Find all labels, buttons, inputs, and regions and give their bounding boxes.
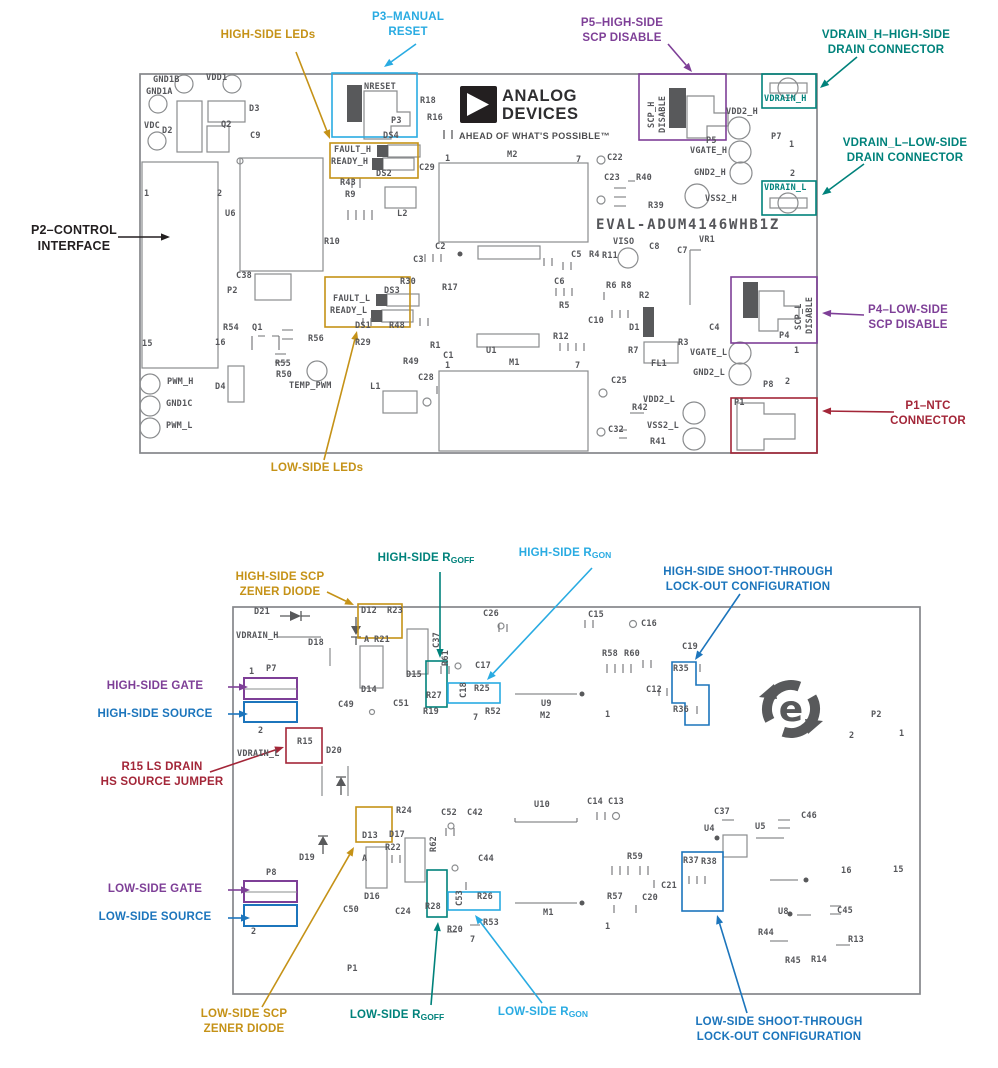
callout-p4-low-side-scp-disable: P4–LOW-SIDESCP DISABLE [868, 303, 948, 332]
bottom-board-refdes-p8: P8 [266, 869, 277, 878]
bottom-board-refdes-c49: C49 [338, 701, 354, 710]
bottom-board-refdes-2: 2 [258, 727, 263, 736]
callout-r15-ls-drain-hs-source-jumper: R15 LS DRAINHS SOURCE JUMPER [101, 760, 224, 789]
bottom-board-refdes-c18: C18 [460, 682, 469, 698]
top-board-refdes-nreset: NRESET [364, 83, 396, 92]
callout-low-side-leds: LOW-SIDE LEDs [271, 461, 363, 476]
top-board-refdes-viso: VISO [613, 238, 634, 247]
bottom-board-refdes-r37: R37 [683, 857, 699, 866]
top-board-refdes-r8: R8 [621, 282, 632, 291]
top-board-refdes-1: 1 [789, 141, 794, 150]
leader-low-side-shoot-through [716, 915, 723, 925]
bottom-board-outline [233, 607, 920, 994]
bottom-board-refdes-c15: C15 [588, 611, 604, 620]
top-board-refdes-m2: M2 [507, 151, 518, 160]
bottom-board-refdes-r59: R59 [627, 853, 643, 862]
callout-high-side-rgon: HIGH-SIDE RGON [519, 546, 612, 561]
callout-high-side-scp-zener-diode: HIGH-SIDE SCPZENER DIODE [236, 570, 325, 599]
bottom-board-refdes-r57: R57 [607, 893, 623, 902]
top-board-refdes-c5: C5 [571, 251, 582, 260]
efup-recycle-icon: e [758, 676, 824, 742]
top-board-refdes-7: 7 [575, 362, 580, 371]
leader-low-side-shoot-through [720, 924, 747, 1013]
leader-p1-ntc-connector [831, 411, 894, 412]
bottom-board-refdes-a: A [364, 636, 369, 645]
top-board-refdes-r10: R10 [324, 238, 340, 247]
bottom-board-refdes-r36: R36 [673, 706, 689, 715]
leader-vdrain-l-drain-connector [829, 164, 864, 190]
top-board-refdes-fl1: FL1 [651, 360, 667, 369]
top-board-refdes-r56: R56 [308, 335, 324, 344]
leader-vdrain-l-drain-connector [822, 187, 831, 195]
top-board-refdes-fault_h: FAULT_H [334, 146, 371, 155]
p8-source-pin-box [244, 905, 297, 926]
efup-e-glyph: e [779, 689, 803, 730]
logo-tagline: AHEAD OF WHAT'S POSSIBLE™ [459, 131, 610, 141]
top-board-refdes-r16: R16 [427, 114, 443, 123]
bottom-board-refdes-c14: C14 [587, 798, 603, 807]
top-board-refdes-c3: C3 [413, 256, 424, 265]
top-board-refdes-r17: R17 [442, 284, 458, 293]
bottom-board-refdes-r14: R14 [811, 956, 827, 965]
top-board-refdes-l2: L2 [397, 210, 408, 219]
top-board-refdes-2: 2 [217, 190, 222, 199]
top-board-refdes-r55: R55 [275, 360, 291, 369]
bottom-board-refdes-c13: C13 [608, 798, 624, 807]
top-board-refdes-r9: R9 [345, 191, 356, 200]
top-board-refdes-r30: R30 [400, 278, 416, 287]
bottom-board-refdes-vdrain_l: VDRAIN_L [237, 750, 280, 759]
top-board-refdes-r54: R54 [223, 324, 239, 333]
bottom-board-refdes-7: 7 [473, 714, 478, 723]
p7-source-pin-box [244, 702, 297, 722]
bottom-board-refdes-c20: C20 [642, 894, 658, 903]
leader-low-side-source [241, 914, 250, 921]
top-board-refdes-temp_pwm: TEMP_PWM [289, 382, 332, 391]
leader-low-side-rgoff [434, 922, 441, 931]
top-board-refdes-c32: C32 [608, 426, 624, 435]
bottom-board-refdes-1: 1 [899, 730, 904, 739]
bottom-board-refdes-c42: C42 [467, 809, 483, 818]
callout-vdrain-h-drain-connector: VDRAIN_H–HIGH-SIDEDRAIN CONNECTOR [822, 28, 950, 57]
bottom-board-refdes-d21: D21 [254, 608, 270, 617]
top-board-refdes-16: 16 [215, 339, 226, 348]
leader-high-side-scp-zener-diode [327, 592, 346, 601]
top-board-refdes-r4: R4 [589, 251, 600, 260]
top-board-refdes-p1: P1 [734, 399, 745, 408]
top-board-refdes-vgate_h: VGATE_H [690, 147, 727, 156]
top-board-refdes-vdd1: VDD1 [206, 74, 227, 83]
top-board-refdes-r39: R39 [648, 202, 664, 211]
bottom-board-refdes-c21: C21 [661, 882, 677, 891]
top-board-refdes-ds1: DS1 [355, 322, 371, 331]
bottom-board-components [277, 621, 850, 946]
top-board-refdes-gnd1b: GND1B [153, 76, 180, 85]
top-board-refdes-ds3: DS3 [384, 287, 400, 296]
bottom-board-refdes-r15: R15 [297, 738, 313, 747]
bottom-board-refdes-u4: U4 [704, 825, 715, 834]
leader-vdrain-h-drain-connector [827, 57, 857, 82]
bottom-board-refdes-c26: C26 [483, 610, 499, 619]
top-board-refdes-c22: C22 [607, 154, 623, 163]
bottom-board-refdes-r22: R22 [385, 844, 401, 853]
leader-p3-manual-reset [384, 59, 393, 67]
top-board-refdes-d1: D1 [629, 324, 640, 333]
top-board-refdes-1: 1 [445, 362, 450, 371]
bottom-board-refdes-r60: R60 [624, 650, 640, 659]
bottom-board-refdes-c19: C19 [682, 643, 698, 652]
top-board-refdes-p8: P8 [763, 381, 774, 390]
bottom-board-refdes-c51: C51 [393, 700, 409, 709]
top-board-refdes-vdc: VDC [144, 122, 160, 131]
leader-low-side-rgon [480, 922, 542, 1003]
callout-low-side-gate: LOW-SIDE GATE [108, 882, 202, 897]
bottom-board-refdes-d12: D12 [361, 607, 377, 616]
bottom-board-refdes-c50: C50 [343, 906, 359, 915]
bottom-board-refdes-r21: R21 [374, 636, 390, 645]
leader-p5-high-side-scp-disable [668, 44, 686, 65]
callout-high-side-source: HIGH-SIDE SOURCE [97, 707, 212, 722]
callout-vdrain-l-drain-connector: VDRAIN_L–LOW-SIDEDRAIN CONNECTOR [843, 136, 968, 165]
callout-low-side-rgon: LOW-SIDE RGON [498, 1005, 588, 1020]
bottom-board-refdes-u8: U8 [778, 908, 789, 917]
bottom-board-refdes-p1: P1 [347, 965, 358, 974]
bottom-board-refdes-r61: R61 [442, 650, 451, 666]
bottom-board-refdes-r62: R62 [430, 836, 439, 852]
top-board-refdes-2: 2 [785, 378, 790, 387]
bottom-board-refdes-r35: R35 [673, 665, 689, 674]
bottom-board-refdes-c16: C16 [641, 620, 657, 629]
top-board-refdes-gnd2_l: GND2_L [693, 369, 725, 378]
top-board-refdes-c29: C29 [419, 164, 435, 173]
leader-p2-control-interface [161, 233, 170, 240]
callout-p5-high-side-scp-disable: P5–HIGH-SIDESCP DISABLE [581, 16, 663, 45]
top-board-refdes-7: 7 [576, 156, 581, 165]
top-board-refdes-ready_l: READY_L [330, 307, 367, 316]
top-board-refdes-r43: R43 [340, 179, 356, 188]
top-board-refdes-r29: R29 [355, 339, 371, 348]
m2-body [439, 163, 588, 242]
bottom-board-refdes-r44: R44 [758, 929, 774, 938]
top-board-refdes-c28: C28 [418, 374, 434, 383]
top-board-refdes-c23: C23 [604, 174, 620, 183]
top-board-refdes-d2: D2 [162, 127, 173, 136]
top-board-refdes-vss2_h: VSS2_H [705, 195, 737, 204]
bottom-board-refdes-r24: R24 [396, 807, 412, 816]
leader-high-side-leds [323, 129, 330, 139]
top-board-refdes-vgate_l: VGATE_L [690, 349, 727, 358]
callout-high-side-leds: HIGH-SIDE LEDs [221, 28, 316, 43]
top-board-refdes-r1: R1 [430, 342, 441, 351]
top-board-refdes-r5: R5 [559, 302, 570, 311]
bottom-board-refdes-c37: C37 [714, 808, 730, 817]
top-board-refdes-1: 1 [144, 190, 149, 199]
bottom-board-refdes-7: 7 [470, 936, 475, 945]
top-board-refdes-r18: R18 [420, 97, 436, 106]
top-board-refdes-r41: R41 [650, 438, 666, 447]
leader-high-side-rgon [493, 568, 592, 673]
bottom-board-refdes-d14: D14 [361, 686, 377, 695]
callout-low-side-scp-zener-diode: LOW-SIDE SCPZENER DIODE [201, 1007, 288, 1036]
top-board-refdes-c4: C4 [709, 324, 720, 333]
bottom-board-refdes-r53: R53 [483, 919, 499, 928]
bottom-board-refdes-d18: D18 [308, 639, 324, 648]
top-board-refdes-r50: R50 [276, 371, 292, 380]
bottom-board-refdes-r20: R20 [447, 926, 463, 935]
top-board-refdes-c10: C10 [588, 317, 604, 326]
top-board-refdes-ds2: DS2 [376, 170, 392, 179]
top-board-refdes-r12: R12 [553, 333, 569, 342]
bottom-board-refdes-a: A [362, 855, 367, 864]
top-board-refdes-vss2_l: VSS2_L [647, 422, 679, 431]
top-board-refdes-15: 15 [142, 340, 153, 349]
bottom-board-refdes-r26: R26 [477, 893, 493, 902]
bottom-board-refdes-c17: C17 [475, 662, 491, 671]
leader-high-side-leds [296, 52, 327, 131]
board-silkscreen-title: EVAL-ADUM4146WHB1Z [596, 217, 780, 233]
callout-p1-ntc-connector: P1–NTCCONNECTOR [890, 399, 966, 428]
top-board-refdes-c8: C8 [649, 243, 660, 252]
callout-low-side-shoot-through: LOW-SIDE SHOOT-THROUGHLOCK-OUT CONFIGURA… [695, 1015, 862, 1044]
bottom-board-refdes-r45: R45 [785, 957, 801, 966]
bottom-board-refdes-u10: U10 [534, 801, 550, 810]
bottom-board-refdes-r52: R52 [485, 708, 501, 717]
bottom-board-refdes-m2: M2 [540, 712, 551, 721]
top-board-refdes-fault_l: FAULT_L [333, 295, 370, 304]
top-board-refdes-p3: P3 [391, 117, 402, 126]
leader-p4-low-side-scp-disable [822, 310, 831, 317]
top-board-refdes-r6: R6 [606, 282, 617, 291]
analog-devices-logo: ANALOG DEVICES AHEAD OF WHAT'S POSSIBLE™ [444, 86, 610, 141]
top-board-refdes-q2: Q2 [221, 121, 232, 130]
m1-body [439, 371, 588, 451]
top-board-refdes-vdrain_h: VDRAIN_H [764, 95, 807, 104]
p1-connector-outline [737, 403, 795, 450]
top-board-refdes-ds4: DS4 [383, 132, 399, 141]
bottom-board-refdes-1: 1 [249, 668, 254, 677]
top-board-refdes-c9: C9 [250, 132, 261, 141]
top-board-refdes-vdrain_l: VDRAIN_L [764, 184, 807, 193]
bottom-board-refdes-r58: R58 [602, 650, 618, 659]
p5-jumper-outline [687, 96, 728, 138]
bottom-board-refdes-d20: D20 [326, 747, 342, 756]
bottom-board-refdes-r19: R19 [423, 708, 439, 717]
bottom-board-refdes-u9: U9 [541, 700, 552, 709]
top-board-refdes-r3: R3 [678, 339, 689, 348]
top-board-refdes-gnd1c: GND1C [166, 400, 193, 409]
top-board-refdes-2: 2 [790, 170, 795, 179]
bottom-board-refdes-c45: C45 [837, 907, 853, 916]
top-board-refdes-gnd2_h: GND2_H [694, 169, 726, 178]
top-board-refdes-p5: P5 [706, 137, 717, 146]
bottom-board-refdes-r23: R23 [387, 607, 403, 616]
callout-p3-manual-reset: P3–MANUALRESET [372, 10, 444, 39]
leader-low-side-leds [324, 340, 355, 460]
top-board-refdes-l1: L1 [370, 383, 381, 392]
top-board-refdes-p2: P2 [227, 287, 238, 296]
bottom-board-refdes-r13: R13 [848, 936, 864, 945]
bottom-board-refdes-2: 2 [251, 928, 256, 937]
bottom-board-refdes-d19: D19 [299, 854, 315, 863]
top-board-refdes-r7: R7 [628, 347, 639, 356]
top-board-refdes-d4: D4 [215, 383, 226, 392]
top-board-refdes-u1: U1 [486, 347, 497, 356]
u6-body [240, 158, 323, 271]
top-board-refdes-r42: R42 [632, 404, 648, 413]
bottom-board-refdes-c53: C53 [456, 890, 465, 906]
bottom-board-refdes-c37: C37 [433, 632, 442, 648]
leader-high-side-shoot-through [700, 594, 740, 653]
top-board-refdes-gnd1a: GND1A [146, 88, 173, 97]
bottom-board-refdes-d17: D17 [389, 831, 405, 840]
top-board-refdes-pwm_h: PWM_H [167, 378, 194, 387]
top-board-refdes-disable: DISABLE [806, 297, 815, 334]
top-board-refdes-p4: P4 [779, 332, 790, 341]
bottom-board-refdes-r38: R38 [701, 858, 717, 867]
top-board-refdes-1: 1 [445, 155, 450, 164]
callout-high-side-shoot-through: HIGH-SIDE SHOOT-THROUGHLOCK-OUT CONFIGUR… [663, 565, 832, 594]
top-board-refdes-pwm_l: PWM_L [166, 422, 193, 431]
p2-connector-body [142, 162, 218, 368]
top-board-refdes-p7: P7 [771, 133, 782, 142]
bottom-board-refdes-vdrain_h: VDRAIN_H [236, 632, 279, 641]
bottom-board-refdes-c46: C46 [801, 812, 817, 821]
top-board-refdes-r11: R11 [602, 252, 618, 261]
bottom-board-refdes-c44: C44 [478, 855, 494, 864]
eval-board-figure: ANALOG DEVICES AHEAD OF WHAT'S POSSIBLE™… [0, 0, 998, 1068]
callout-low-side-rgoff: LOW-SIDE RGOFF [350, 1008, 444, 1023]
top-board-refdes-r40: R40 [636, 174, 652, 183]
callout-high-side-gate: HIGH-SIDE GATE [107, 679, 204, 694]
top-board-refdes-c2: C2 [435, 243, 446, 252]
callout-p2-control-interface: P2–CONTROLINTERFACE [31, 222, 117, 254]
p4-jumper-outline [759, 291, 799, 331]
top-board-refdes-q1: Q1 [252, 324, 263, 333]
top-board-refdes-scp_h: SCP_H [648, 101, 657, 128]
top-board-refdes-c38: C38 [236, 272, 252, 281]
bottom-board-refdes-c52: C52 [441, 809, 457, 818]
bottom-board-refdes-2: 2 [849, 732, 854, 741]
bottom-board-refdes-r27: R27 [426, 692, 442, 701]
top-board-refdes-vr1: VR1 [699, 236, 715, 245]
logo-line1: ANALOG [502, 87, 577, 105]
leader-p4-low-side-scp-disable [831, 313, 864, 315]
top-board-refdes-ready_h: READY_H [331, 158, 368, 167]
bottom-board-refdes-1: 1 [605, 923, 610, 932]
leader-p1-ntc-connector [822, 408, 831, 415]
callout-high-side-rgoff: HIGH-SIDE RGOFF [378, 551, 475, 566]
bottom-board-refdes-r25: R25 [474, 685, 490, 694]
top-board-refdes-r48: R48 [389, 322, 405, 331]
leader-low-side-gate [241, 886, 250, 893]
bottom-board-refdes-r28: R28 [425, 903, 441, 912]
top-board-refdes-disable: DISABLE [659, 96, 668, 133]
top-board-refdes-c6: C6 [554, 278, 565, 287]
leader-p3-manual-reset [391, 44, 416, 62]
top-board-refdes-vdd2_h: VDD2_H [726, 108, 758, 117]
bottom-board-refdes-p7: P7 [266, 665, 277, 674]
bottom-board-refdes-15: 15 [893, 866, 904, 875]
bottom-board-refdes-p2: P2 [871, 711, 882, 720]
top-board-refdes-scp_l: SCP_L [795, 303, 804, 330]
top-board-refdes-c25: C25 [611, 377, 627, 386]
top-board-refdes-r49: R49 [403, 358, 419, 367]
top-board-refdes-c1: C1 [443, 352, 454, 361]
bottom-board-refdes-c12: C12 [646, 686, 662, 695]
top-board-refdes-m1: M1 [509, 359, 520, 368]
bottom-board-refdes-d16: D16 [364, 893, 380, 902]
bottom-board-refdes-c24: C24 [395, 908, 411, 917]
top-board-refdes-u6: U6 [225, 210, 236, 219]
top-board-refdes-c7: C7 [677, 247, 688, 256]
bottom-board-refdes-u5: U5 [755, 823, 766, 832]
callout-low-side-source: LOW-SIDE SOURCE [99, 910, 212, 925]
leader-high-side-scp-zener-diode [344, 598, 354, 605]
top-board-refdes-r2: R2 [639, 292, 650, 301]
bottom-board-refdes-16: 16 [841, 867, 852, 876]
bottom-board-refdes-1: 1 [605, 711, 610, 720]
bottom-board-refdes-m1: M1 [543, 909, 554, 918]
top-board-refdes-1: 1 [794, 347, 799, 356]
top-board-refdes-d3: D3 [249, 105, 260, 114]
bottom-board-refdes-d15: D15 [406, 671, 422, 680]
logo-line2: DEVICES [502, 105, 579, 123]
bottom-board-refdes-d13: D13 [362, 832, 378, 841]
leader-low-side-scp-zener-diode [346, 847, 354, 857]
dark-components [290, 85, 809, 917]
